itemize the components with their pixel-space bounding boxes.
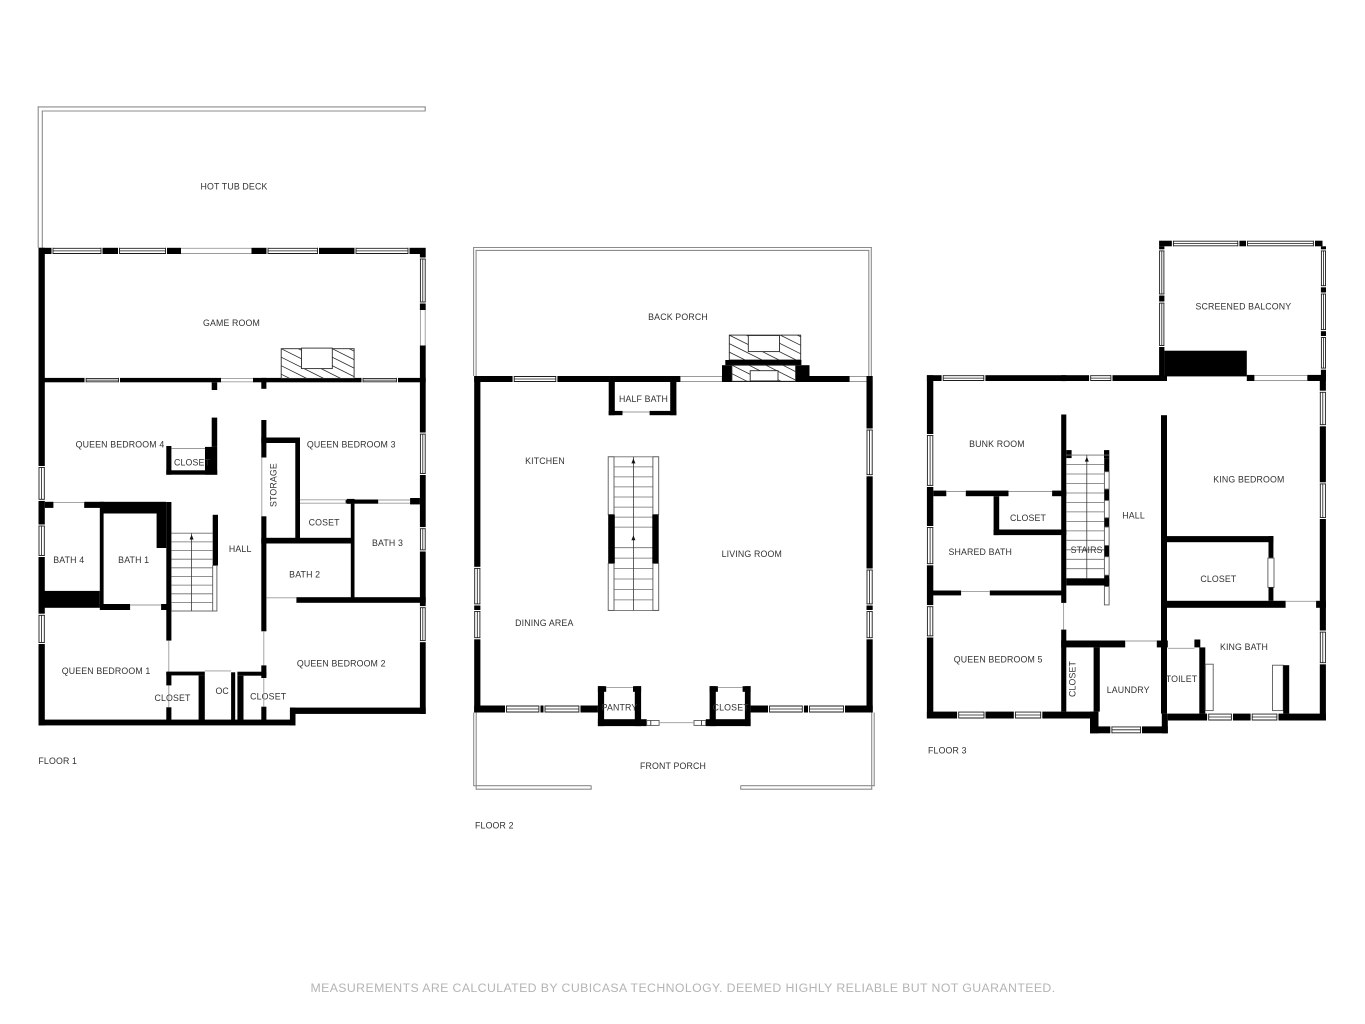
svg-text:HALF BATH: HALF BATH [619, 394, 668, 404]
svg-text:STORAGE: STORAGE [268, 463, 278, 507]
svg-text:PANTRY: PANTRY [602, 703, 638, 713]
svg-text:QUEEN BEDROOM 5: QUEEN BEDROOM 5 [954, 655, 1043, 665]
svg-text:FLOOR 3: FLOOR 3 [928, 746, 967, 756]
svg-text:STAIRS: STAIRS [1071, 545, 1103, 555]
svg-text:CLOSET: CLOSET [250, 692, 287, 702]
svg-text:FRONT PORCH: FRONT PORCH [640, 761, 706, 771]
svg-text:HALL: HALL [1122, 511, 1145, 521]
svg-text:SCREENED BALCONY: SCREENED BALCONY [1196, 301, 1292, 311]
svg-text:CLOSET: CLOSET [1068, 660, 1078, 697]
svg-text:CLOSET: CLOSET [174, 458, 211, 468]
svg-text:KING BEDROOM: KING BEDROOM [1213, 474, 1284, 484]
svg-text:CLOSET: CLOSET [1200, 574, 1237, 584]
svg-text:KING BATH: KING BATH [1220, 642, 1268, 652]
svg-text:TOILET: TOILET [1166, 674, 1198, 684]
svg-text:BACK PORCH: BACK PORCH [648, 312, 708, 322]
svg-text:HOT TUB DECK: HOT TUB DECK [201, 182, 268, 192]
svg-text:GAME ROOM: GAME ROOM [203, 318, 260, 328]
svg-text:MEASUREMENTS ARE CALCULATED BY: MEASUREMENTS ARE CALCULATED BY CUBICASA … [310, 981, 1055, 995]
svg-text:FLOOR 2: FLOOR 2 [475, 821, 514, 831]
svg-text:CLOSET: CLOSET [713, 703, 750, 713]
svg-text:LAUNDRY: LAUNDRY [1107, 685, 1150, 695]
svg-text:QUEEN BEDROOM 4: QUEEN BEDROOM 4 [76, 440, 165, 450]
svg-text:BUNK ROOM: BUNK ROOM [969, 439, 1025, 449]
svg-text:SHARED BATH: SHARED BATH [949, 547, 1013, 557]
svg-text:CLOSET: CLOSET [154, 693, 191, 703]
svg-text:CLOSET: CLOSET [1010, 513, 1047, 523]
svg-text:FLOOR 1: FLOOR 1 [38, 756, 77, 766]
svg-text:BATH 1: BATH 1 [118, 555, 149, 565]
svg-text:QUEEN BEDROOM 1: QUEEN BEDROOM 1 [62, 666, 151, 676]
svg-text:QUEEN BEDROOM 2: QUEEN BEDROOM 2 [297, 659, 386, 669]
svg-text:DINING AREA: DINING AREA [515, 618, 573, 628]
svg-text:BATH 3: BATH 3 [372, 538, 403, 548]
svg-text:HALL: HALL [229, 544, 252, 554]
svg-text:BATH 2: BATH 2 [289, 570, 320, 580]
svg-text:KITCHEN: KITCHEN [525, 456, 565, 466]
svg-text:COSET: COSET [309, 518, 341, 528]
svg-text:LIVING ROOM: LIVING ROOM [722, 549, 782, 559]
svg-text:QUEEN BEDROOM 3: QUEEN BEDROOM 3 [307, 440, 396, 450]
svg-text:OC: OC [215, 686, 229, 696]
svg-text:BATH 4: BATH 4 [53, 555, 84, 565]
